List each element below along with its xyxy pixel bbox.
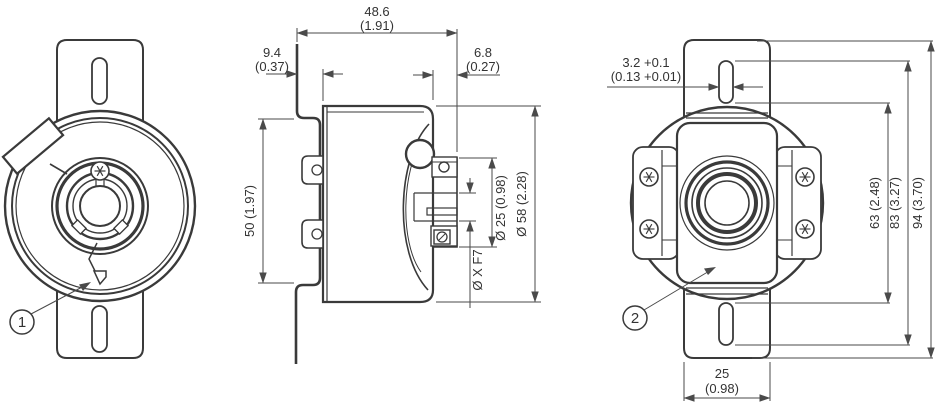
dim-dia-x-label: Ø X F7 [470,249,485,290]
rear-top-tab [684,40,770,117]
rear-bracket-right [775,147,821,259]
dim-9-4-mm: 9.4 [263,45,281,60]
dim-dia-58-label: Ø 58 (2.28) [514,171,529,237]
front-clamp-notch-right [114,220,128,234]
rear-bottom-slot [719,303,733,345]
front-index-mark [94,271,106,284]
dim-9-4-in: (0.37) [255,59,289,74]
dim-dia-x: Ø X F7 [459,178,485,308]
callout-1-label: 1 [18,314,26,331]
dim-48-6-in: (1.91) [360,18,394,33]
screw-icon [796,168,814,186]
rear-top-tab-rim-lines [686,113,768,118]
front-top-tab [57,40,143,122]
technical-drawing: 1 [0,0,940,403]
section-bearing [406,140,434,168]
front-top-slot [92,58,107,104]
dim-dia-58: Ø 58 (2.28) [436,106,541,302]
front-clamp-notch-left [72,220,86,234]
section-clip-upper [302,156,323,184]
screw-icon [640,220,658,238]
dim-3-2-mm: 3.2 +0.1 [622,55,669,70]
section-bore-lines [414,193,457,221]
dim-83: 83 (3.27) [887,61,908,345]
dim-9-4: 9.4 (0.37) [255,45,343,101]
dim-94: 94 (3.70) [910,41,931,358]
view-rear: 2 3.2 +0.1 (0.13 +0.01) 63 (2.48) 83 (3.… [607,40,933,401]
dim-25: 25 (0.98) [684,362,770,401]
dim-83-label: 83 (3.27) [887,177,902,229]
screw-icon [796,220,814,238]
rear-bracket-left [633,147,679,259]
view-side-section: 48.6 (1.91) 9.4 (0.37) 6.8 (0.27) 50 (1.… [242,4,541,364]
dim-6-8-mm: 6.8 [474,45,492,60]
section-clamp-groove [427,208,457,215]
dim-50: 50 (1.97) [242,119,294,283]
section-race-bottom [431,226,457,246]
dim-dia-25-label: Ø 25 (0.98) [493,175,508,241]
dim-50-label: 50 (1.97) [242,185,257,237]
rear-top-slot [719,61,733,103]
rear-bottom-tab-rim-lines [686,288,768,294]
section-clip-lower [302,220,323,248]
callout-2-label: 2 [631,310,639,327]
front-shaft-bore [80,186,120,226]
view-front: 1 [3,40,195,358]
section-race-top [432,157,457,177]
section-spring-sheet [296,44,320,364]
front-torque-tab [3,118,63,173]
front-clamp-screw-icon [91,162,109,187]
callout-1: 1 [10,282,91,334]
front-bottom-slot [92,306,107,352]
dim-25-in: (0.98) [705,381,739,396]
dim-63: 63 (2.48) [867,103,888,303]
dim-25-mm: 25 [715,366,729,381]
dim-dia-25: Ø 25 (0.98) [459,158,508,247]
dim-3-2-in: (0.13 +0.01) [611,69,681,84]
section-hub-assembly [406,140,457,247]
screw-icon [640,168,658,186]
drawing-canvas: 1 [0,0,940,403]
dim-6-8-in: (0.27) [466,59,500,74]
dim-63-label: 63 (2.48) [867,177,882,229]
dim-48-6-mm: 48.6 [364,4,389,19]
dim-94-label: 94 (3.70) [910,177,925,229]
